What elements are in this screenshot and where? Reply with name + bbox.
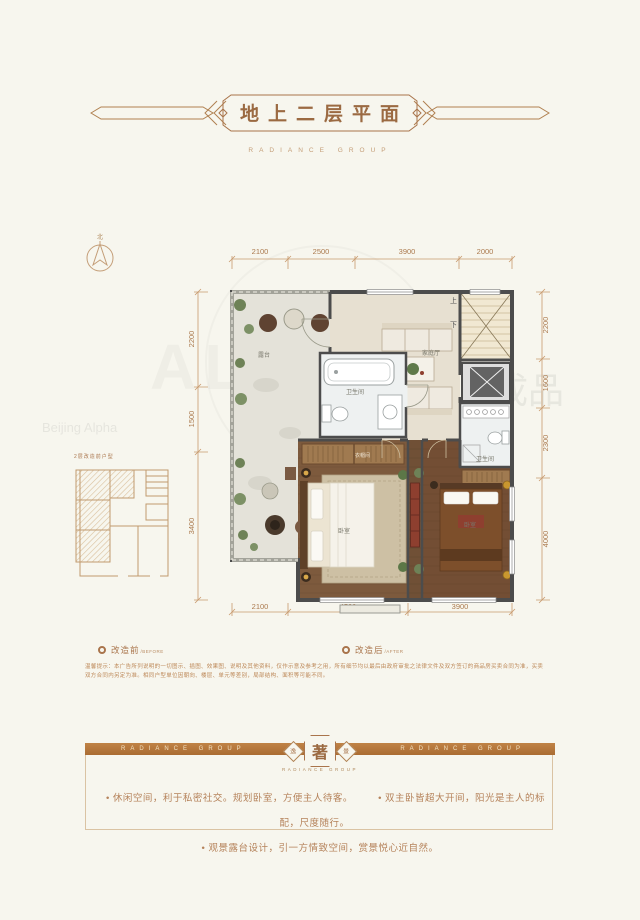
svg-text:3900: 3900 <box>452 602 469 611</box>
svg-text:1600: 1600 <box>541 375 550 392</box>
disclaimer: 温馨提示：本广告所列说明的一切图示、插图、效果图、说明及其他资料，仅作示意及参考… <box>85 663 555 681</box>
svg-text:1500: 1500 <box>187 411 196 428</box>
legend-after: 改造后 /AFTER <box>342 644 404 656</box>
emblem-left-wing: 逸 <box>283 740 304 761</box>
disclaimer-line-1: 温馨提示：本广告所列说明的一切图示、插图、效果图、说明及其他资料，仅作示意及参考… <box>85 663 555 672</box>
banner-left-text: RADIANCE GROUP <box>121 746 246 752</box>
compass-north-label: 北 <box>97 233 103 241</box>
stairs-down-label: 下 <box>450 321 457 329</box>
svg-text:2000: 2000 <box>477 247 494 256</box>
svg-text:2100: 2100 <box>252 247 269 256</box>
svg-text:2500: 2500 <box>313 247 330 256</box>
header-decoration: 地上二层平面 <box>85 88 555 144</box>
disclaimer-line-2: 双方合同内另定为准。相同户型单位因朝向、楼层、单元等差别，局部结构、面积等可能不… <box>85 672 555 681</box>
inset-before-plan: 2层改造前户型 <box>70 448 182 586</box>
feature-bullets: • 休闲空间，利于私密社交。规划卧室，方便主人待客。 • 双主卧皆超大开间，阳光… <box>85 786 555 861</box>
bathroom-1-label: 卫生间 <box>346 388 364 396</box>
legend-before-dot-icon <box>98 646 106 654</box>
banner-subtitle: RADIANCE GROUP <box>85 767 555 772</box>
svg-text:3400: 3400 <box>187 518 196 535</box>
inset-caption: 2层改造前户型 <box>74 453 114 460</box>
emblem-seal: 著 <box>304 735 336 767</box>
legend-before-sub: /BEFORE <box>141 649 164 654</box>
terrace-label: 露台 <box>258 351 270 359</box>
brand-emblem: 逸 著 景 <box>283 731 357 771</box>
feature-bullet-3: • 观景露台设计，引一方情致空间，赏景悦心近自然。 <box>202 843 439 854</box>
bathroom-2-label: 卫生间 <box>476 455 494 463</box>
floor-plan: 2100 2500 3900 2000 2100 4500 3900 2200 … <box>170 235 570 655</box>
compass-icon: 北 <box>80 230 120 278</box>
stairs-up-label: 上 <box>450 296 457 305</box>
legend-after-sub: /AFTER <box>385 649 404 654</box>
svg-text:4000: 4000 <box>541 531 550 548</box>
feature-bullet-1: • 休闲空间，利于私密社交。规划卧室，方便主人待客。 <box>106 793 353 804</box>
elevator <box>462 363 510 401</box>
page-title: 地上二层平面 <box>240 102 408 125</box>
banner-right-text: RADIANCE GROUP <box>400 746 525 752</box>
bedroom-2-label: 卧室 <box>464 521 476 529</box>
svg-text:2300: 2300 <box>541 435 550 452</box>
legend-before: 改造前 /BEFORE <box>98 644 164 656</box>
svg-text:2100: 2100 <box>252 602 269 611</box>
family-room-label: 家庭厅 <box>422 349 440 357</box>
bedroom-1-label: 卧室 <box>338 527 350 535</box>
header-subtitle: RADIANCE GROUP <box>0 147 640 154</box>
cloakroom-label: 衣帽间 <box>355 452 370 459</box>
watermark-text-en: Beijing Alpha <box>42 420 117 435</box>
emblem-right-wing: 景 <box>336 740 357 761</box>
legend-before-label: 改造前 <box>111 644 140 656</box>
svg-text:2200: 2200 <box>187 331 196 348</box>
legend-after-dot-icon <box>342 646 350 654</box>
legend-after-label: 改造后 <box>355 644 384 656</box>
svg-text:3900: 3900 <box>399 247 416 256</box>
svg-text:2200: 2200 <box>541 317 550 334</box>
